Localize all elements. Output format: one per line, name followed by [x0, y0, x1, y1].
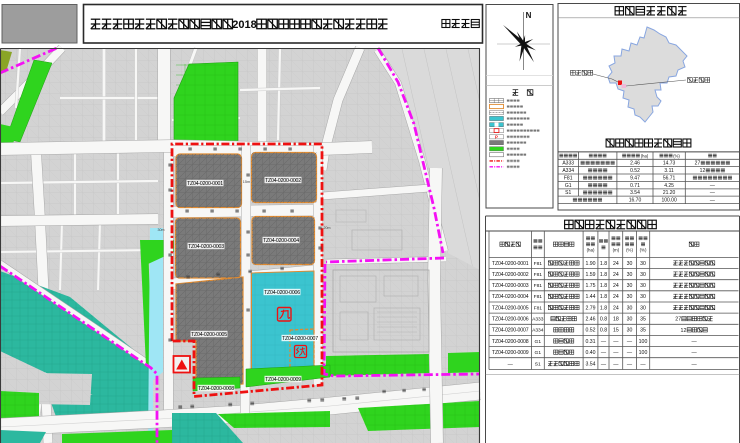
svg-text:A334: A334 [532, 328, 544, 334]
svg-text:TZ04-0200-0009: TZ04-0200-0009 [265, 377, 301, 383]
svg-text:F81: F81 [534, 272, 543, 278]
svg-text:TZ04-0200-0003: TZ04-0200-0003 [188, 244, 224, 250]
svg-text:F81: F81 [534, 283, 543, 289]
svg-text:TZ04-0200-0008: TZ04-0200-0008 [492, 339, 529, 345]
svg-text:14.73: 14.73 [663, 161, 676, 167]
svg-text:2.79: 2.79 [585, 305, 595, 311]
svg-text:TZ04-0200-0005: TZ04-0200-0005 [492, 305, 529, 311]
svg-text:—: — [613, 339, 619, 345]
svg-text:(%): (%) [673, 153, 680, 158]
svg-text:100.00: 100.00 [661, 198, 677, 204]
svg-text:15m: 15m [243, 180, 250, 184]
svg-text:A334: A334 [562, 168, 574, 174]
svg-text:—: — [627, 361, 633, 367]
svg-text:7: 7 [698, 161, 701, 167]
svg-text:TZ04-0200-0007: TZ04-0200-0007 [492, 328, 529, 334]
svg-text:20m: 20m [324, 226, 331, 230]
svg-text:—: — [710, 183, 715, 189]
svg-text:—: — [692, 361, 698, 367]
svg-text:TZ04-0200-0003: TZ04-0200-0003 [492, 283, 529, 289]
svg-text:TZ04-0200-0005: TZ04-0200-0005 [191, 332, 227, 338]
svg-text:15: 15 [613, 328, 619, 334]
svg-text:(ha): (ha) [641, 153, 649, 158]
svg-text:16.70: 16.70 [629, 198, 642, 204]
svg-text:(m): (m) [613, 248, 620, 253]
svg-text:(%): (%) [640, 248, 647, 253]
svg-text:TZ04-0200-0001: TZ04-0200-0001 [187, 181, 223, 187]
svg-text:A333: A333 [532, 317, 544, 323]
svg-text:2: 2 [703, 168, 706, 174]
svg-text:0.31: 0.31 [585, 339, 595, 345]
svg-text:0.52: 0.52 [630, 168, 640, 174]
svg-text:TZ04-0200-0002: TZ04-0200-0002 [265, 178, 301, 184]
svg-text:—: — [627, 350, 633, 356]
svg-text:TZ04-0200-0006: TZ04-0200-0006 [492, 317, 529, 323]
svg-text:3.11: 3.11 [664, 168, 674, 174]
svg-text:—: — [613, 350, 619, 356]
svg-text:1.8: 1.8 [600, 294, 607, 300]
svg-text:—: — [601, 361, 607, 367]
svg-text:—: — [601, 350, 607, 356]
svg-text:24: 24 [613, 261, 619, 267]
svg-text:30m: 30m [158, 228, 165, 232]
svg-text:1.75: 1.75 [585, 283, 595, 289]
svg-text:1.59: 1.59 [585, 272, 595, 278]
svg-text:TZ04-0200-0008: TZ04-0200-0008 [198, 386, 234, 392]
svg-text:0.52: 0.52 [585, 328, 595, 334]
svg-text:24: 24 [613, 294, 619, 300]
svg-text:TZ04-0200-0009: TZ04-0200-0009 [492, 350, 529, 356]
svg-text:A333: A333 [562, 161, 574, 167]
svg-text:3.54: 3.54 [630, 190, 640, 196]
svg-text:F81: F81 [534, 305, 543, 311]
svg-text:—: — [640, 361, 646, 367]
svg-text:1.8: 1.8 [600, 305, 607, 311]
svg-text:30: 30 [627, 317, 633, 323]
svg-text:2: 2 [684, 328, 687, 334]
svg-text:24: 24 [613, 283, 619, 289]
svg-text:2.46: 2.46 [585, 317, 595, 323]
svg-text:35: 35 [640, 328, 646, 334]
svg-text:30: 30 [627, 294, 633, 300]
svg-text:1.44: 1.44 [585, 294, 595, 300]
svg-text:30: 30 [627, 283, 633, 289]
svg-text:24: 24 [613, 305, 619, 311]
svg-text:N: N [526, 11, 532, 20]
svg-text:30: 30 [640, 294, 646, 300]
svg-text:1.90: 1.90 [585, 261, 595, 267]
svg-text:TZ04-0200-0007: TZ04-0200-0007 [282, 336, 318, 342]
svg-text:—: — [613, 361, 619, 367]
svg-text:G1: G1 [535, 339, 542, 345]
svg-text:21.20: 21.20 [663, 190, 676, 196]
svg-text:0.40: 0.40 [585, 350, 595, 356]
svg-text:1.8: 1.8 [600, 283, 607, 289]
svg-text:100: 100 [639, 339, 648, 345]
svg-text:0.71: 0.71 [630, 183, 640, 189]
svg-text:TZ04-0200-0002: TZ04-0200-0002 [492, 272, 529, 278]
svg-text:F81: F81 [534, 261, 543, 267]
svg-text:30: 30 [640, 283, 646, 289]
svg-text:P: P [495, 134, 498, 139]
svg-text:—: — [692, 350, 698, 356]
svg-text:—: — [627, 339, 633, 345]
svg-text:—: — [710, 190, 715, 196]
svg-text:2.46: 2.46 [630, 161, 640, 167]
svg-text:TZ04-0200-0004: TZ04-0200-0004 [263, 238, 299, 244]
svg-text:30: 30 [640, 272, 646, 278]
svg-text:G1: G1 [565, 183, 572, 189]
svg-text:F81: F81 [564, 175, 573, 181]
svg-text:1.8: 1.8 [600, 272, 607, 278]
svg-text:F81: F81 [534, 294, 543, 300]
svg-text:TZ04-0200-0006: TZ04-0200-0006 [264, 290, 300, 296]
svg-text:TZ04-0200-0001: TZ04-0200-0001 [492, 261, 529, 267]
svg-text:—: — [508, 361, 514, 367]
svg-text:4.25: 4.25 [664, 183, 674, 189]
svg-text:9.47: 9.47 [630, 175, 640, 181]
svg-text:30: 30 [640, 305, 646, 311]
svg-text:56.71: 56.71 [663, 175, 676, 181]
svg-text:TZ04-0200-0004: TZ04-0200-0004 [492, 294, 529, 300]
svg-text:S1: S1 [535, 361, 541, 367]
svg-text:30: 30 [627, 272, 633, 278]
svg-text:0.8: 0.8 [600, 328, 607, 334]
svg-text:—: — [692, 339, 698, 345]
svg-text:1.8: 1.8 [600, 261, 607, 267]
svg-text:3.54: 3.54 [585, 361, 595, 367]
svg-text:—: — [710, 198, 715, 204]
svg-text:100: 100 [639, 350, 648, 356]
svg-text:35: 35 [640, 317, 646, 323]
svg-text:24: 24 [613, 272, 619, 278]
svg-text:2018: 2018 [232, 19, 256, 31]
svg-text:30: 30 [627, 328, 633, 334]
svg-text:S1: S1 [565, 190, 571, 196]
svg-text:(ha): (ha) [587, 248, 595, 253]
svg-text:30: 30 [627, 305, 633, 311]
svg-text:G1: G1 [535, 350, 542, 356]
svg-text:7: 7 [678, 317, 681, 323]
svg-text:18: 18 [613, 317, 619, 323]
svg-text:30: 30 [627, 261, 633, 267]
svg-text:30: 30 [640, 261, 646, 267]
svg-text:—: — [601, 339, 607, 345]
svg-text:0.8: 0.8 [600, 317, 607, 323]
svg-text:(%): (%) [626, 248, 633, 253]
